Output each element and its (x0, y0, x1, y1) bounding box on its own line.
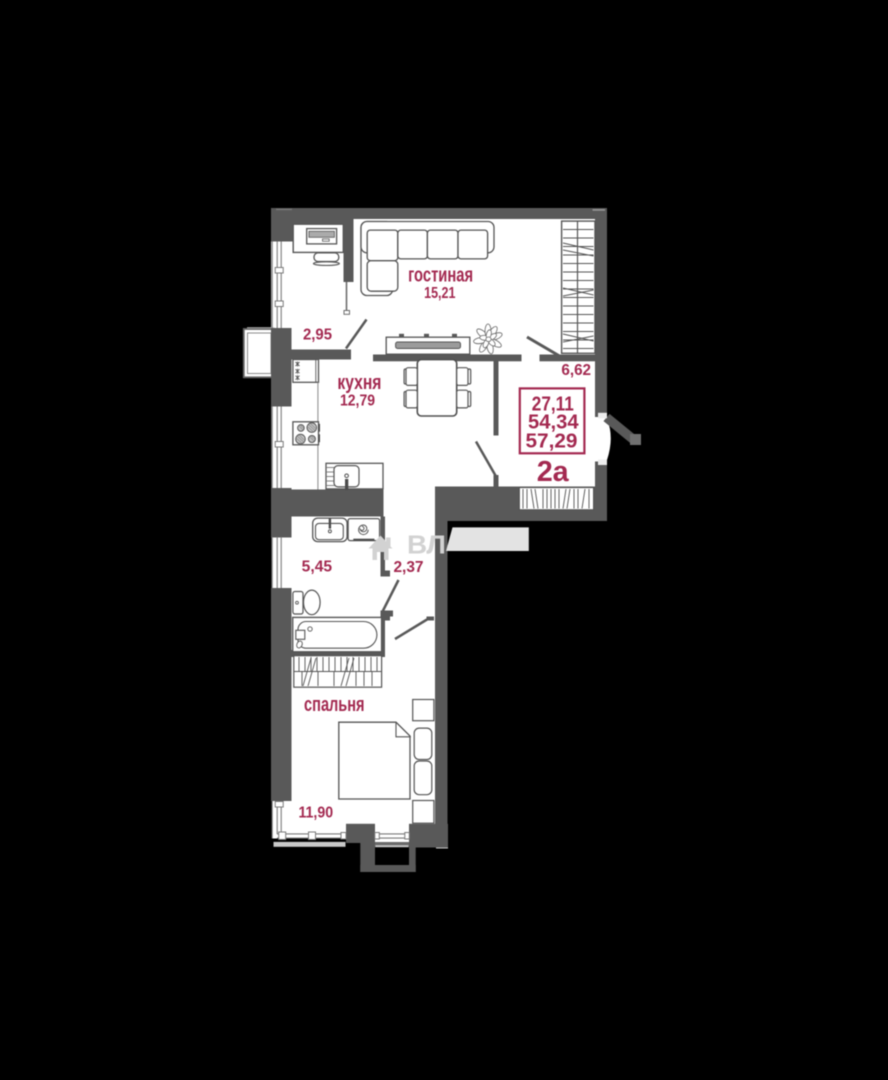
svg-text:спальня: спальня (304, 694, 365, 716)
svg-text:57,29: 57,29 (526, 429, 578, 452)
svg-text:ВЛ: ВЛ (407, 530, 446, 560)
svg-text:15,21: 15,21 (424, 285, 456, 302)
svg-text:кухня: кухня (337, 372, 381, 394)
svg-text:2,37: 2,37 (393, 559, 423, 576)
svg-text:2а: 2а (537, 456, 570, 488)
svg-text:6,62: 6,62 (561, 362, 591, 379)
svg-text:5,45: 5,45 (302, 558, 333, 575)
svg-text:11,90: 11,90 (298, 805, 333, 822)
svg-text:2,95: 2,95 (303, 327, 332, 344)
svg-text:12,79: 12,79 (340, 393, 375, 410)
svg-text:гостиная: гостиная (408, 265, 473, 287)
